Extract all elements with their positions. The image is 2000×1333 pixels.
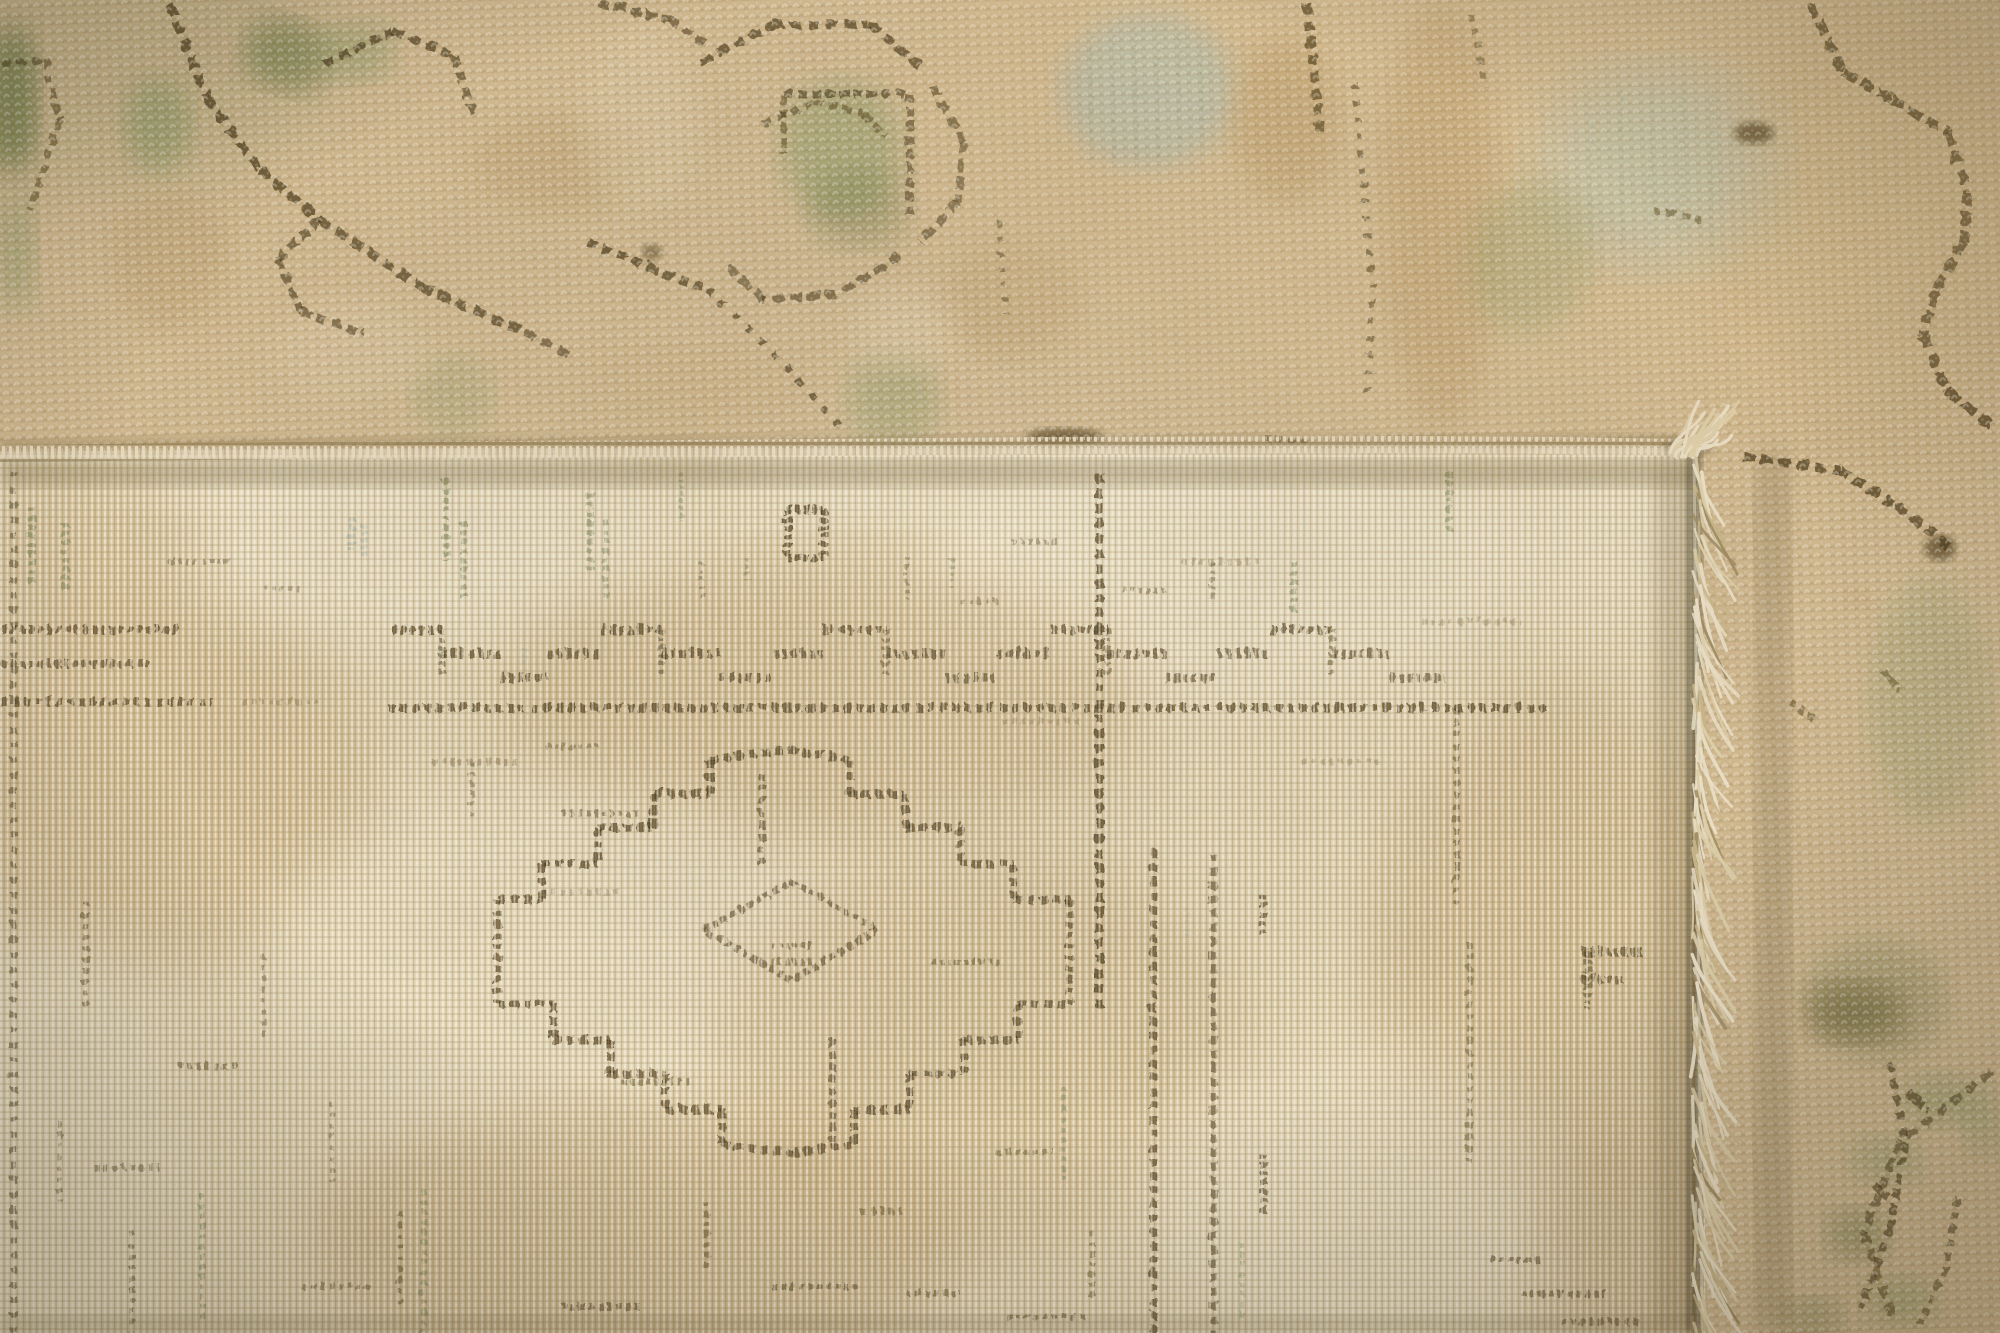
vignette: [0, 0, 2000, 1333]
rug-photo: [0, 0, 2000, 1333]
rug-scene: [0, 0, 2000, 1333]
